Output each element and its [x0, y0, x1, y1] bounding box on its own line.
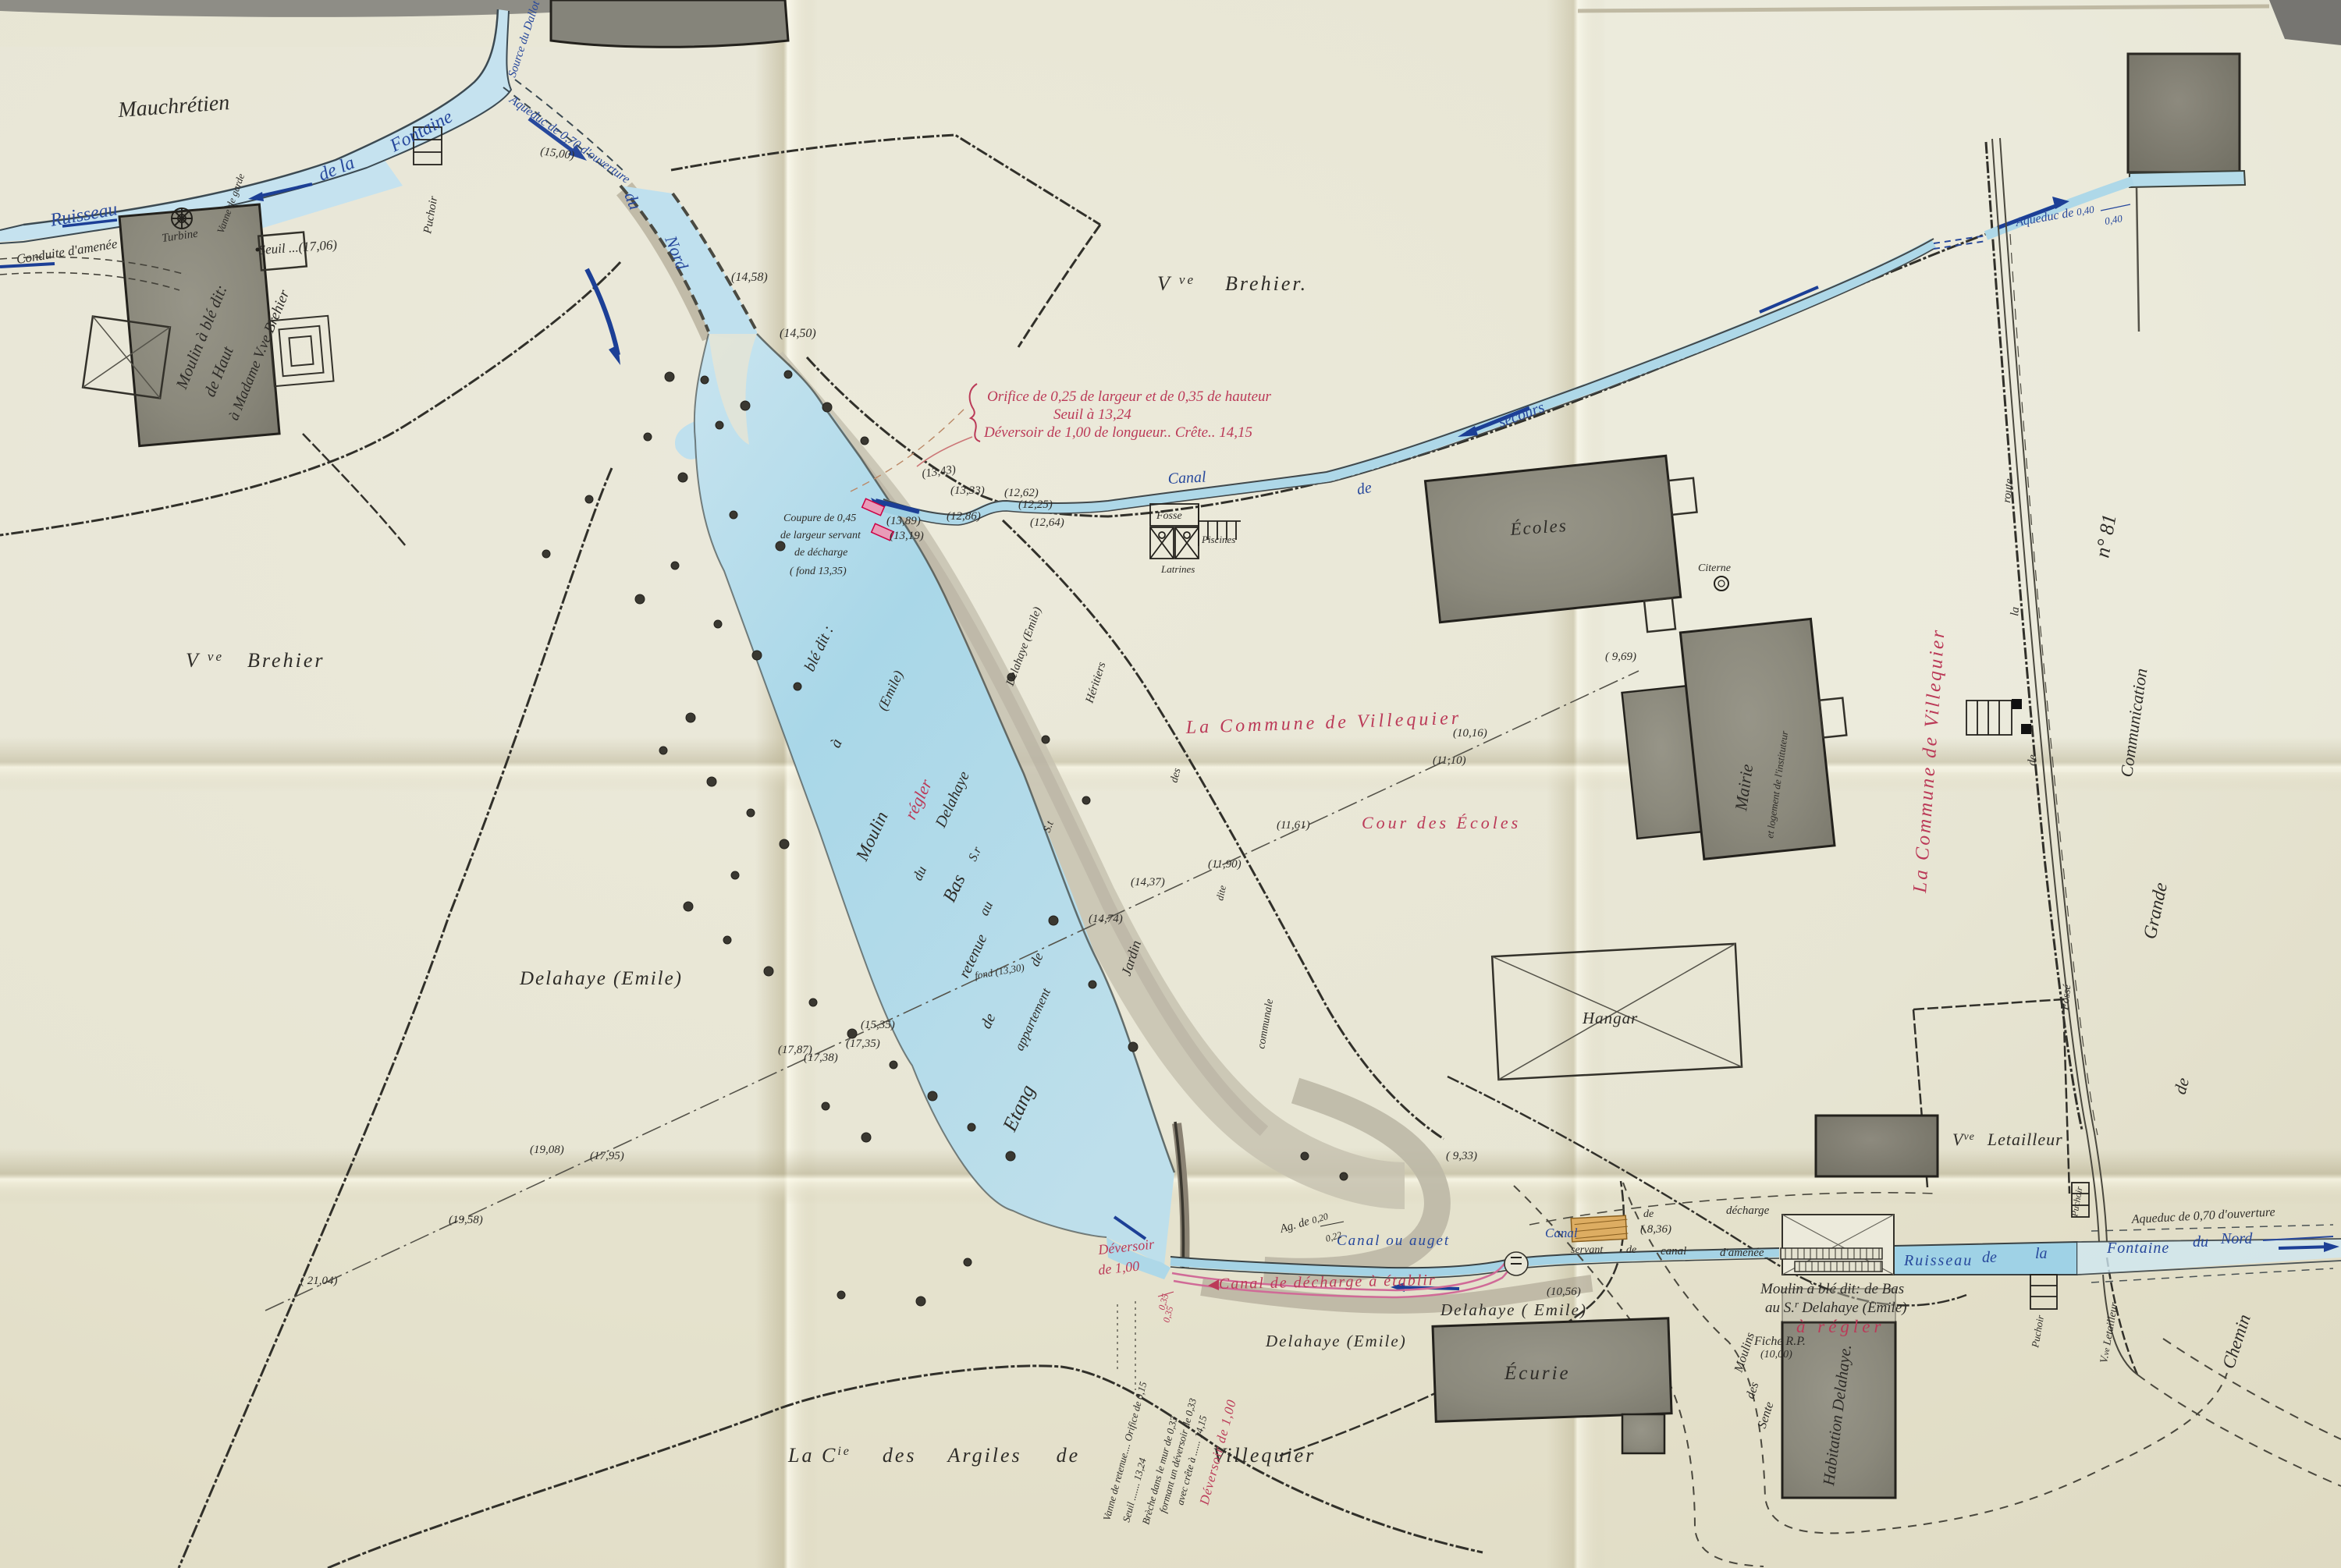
svg-text:Seuil à 13,24: Seuil à 13,24 [1053, 406, 1131, 423]
svg-text:(17,87): (17,87) [778, 1044, 812, 1056]
svg-text:Hangar: Hangar [1582, 1009, 1638, 1027]
svg-text:( 8,36): ( 8,36) [1640, 1223, 1671, 1236]
svg-text:( 21,04): ( 21,04) [300, 1275, 338, 1287]
svg-text:(14,74): (14,74) [1089, 913, 1123, 925]
svg-text:Canal: Canal [1545, 1226, 1578, 1240]
svg-text:Coupure de 0,45: Coupure de 0,45 [783, 513, 856, 524]
svg-text:( fond 13,35): ( fond 13,35) [790, 566, 847, 577]
svg-text:d'amenée: d'amenée [1720, 1247, 1764, 1259]
svg-text:canal: canal [1661, 1245, 1686, 1258]
svg-text:la: la [2035, 1245, 2048, 1262]
svg-text:à régler: à régler [1796, 1317, 1885, 1336]
svg-text:Nord: Nord [2220, 1230, 2253, 1247]
svg-text:Delahaye (Emile): Delahaye (Emile) [1265, 1332, 1407, 1350]
svg-text:(11,90): (11,90) [1208, 858, 1242, 871]
svg-text:Citerne: Citerne [1698, 562, 1731, 574]
svg-text:du: du [2193, 1233, 2208, 1250]
svg-text:Déversoir de 1,00 de longueur.: Déversoir de 1,00 de longueur.. Crête.. … [983, 424, 1252, 441]
svg-text:Ruisseau: Ruisseau [1903, 1252, 1973, 1269]
svg-text:Écurie: Écurie [1504, 1362, 1571, 1384]
svg-text:(17,95): (17,95) [590, 1150, 624, 1162]
svg-text:de: de [1643, 1208, 1654, 1220]
svg-text:de: de [1626, 1244, 1636, 1256]
svg-text:(12,86): (12,86) [947, 510, 981, 523]
svg-text:Cour des Écoles: Cour des Écoles [1362, 813, 1521, 832]
svg-text:de décharge: de décharge [794, 547, 847, 559]
svg-text:de largeur servant: de largeur servant [780, 530, 861, 541]
svg-text:(11,61): (11,61) [1277, 819, 1310, 832]
svg-text:(19,58): (19,58) [449, 1214, 483, 1226]
svg-text:(12,62): (12,62) [1004, 487, 1039, 499]
svg-text:servant: servant [1571, 1244, 1604, 1256]
svg-text:(14,37): (14,37) [1131, 876, 1165, 889]
svg-text:de: de [1355, 479, 1373, 498]
svg-text:Orifice de 0,25 de largeur et: Orifice de 0,25 de largeur et de 0,35 de… [987, 388, 1272, 405]
svg-text:(13,19): (13,19) [890, 530, 924, 542]
svg-text:(13,89): (13,89) [886, 515, 921, 527]
svg-text:Canal ou auget: Canal ou auget [1337, 1233, 1450, 1249]
svg-text:(10,56): (10,56) [1547, 1286, 1581, 1298]
svg-text:V veBrehier: V veBrehier [186, 649, 325, 672]
svg-text:Canal: Canal [1167, 468, 1206, 488]
svg-text:route: route [2001, 477, 2016, 503]
svg-text:(15,35): (15,35) [861, 1019, 895, 1031]
svg-text:( 9,33): ( 9,33) [1446, 1150, 1477, 1162]
svg-text:Fontaine: Fontaine [2106, 1240, 2169, 1257]
svg-text:( 9,69): ( 9,69) [1605, 651, 1636, 663]
svg-text:Fiche R.P.: Fiche R.P. [1753, 1335, 1806, 1348]
svg-text:(10,00): (10,00) [1760, 1349, 1792, 1360]
svg-text:Piscines: Piscines [1201, 534, 1235, 545]
svg-text:(13,33): (13,33) [950, 484, 985, 497]
svg-text:Delahaye (Emile): Delahaye (Emile) [519, 968, 683, 989]
svg-text:au S.rDelahaye (Emile): au S.rDelahaye (Emile) [1765, 1298, 1907, 1316]
svg-text:(14,50): (14,50) [780, 327, 816, 340]
svg-text:décharge: décharge [1726, 1204, 1770, 1217]
svg-text:de: de [1982, 1249, 1997, 1266]
svg-text:la: la [2009, 606, 2022, 616]
svg-text:(10,16): (10,16) [1453, 727, 1487, 740]
svg-text:(11,10): (11,10) [1433, 754, 1466, 767]
svg-text:(19,08): (19,08) [530, 1144, 564, 1156]
svg-text:Delahaye ( Emile): Delahaye ( Emile) [1440, 1300, 1587, 1319]
svg-text:Latrines: Latrines [1160, 563, 1195, 575]
svg-text:(17,35): (17,35) [846, 1038, 880, 1050]
svg-text:(12,25): (12,25) [1018, 498, 1053, 511]
svg-text:de: de [2026, 754, 2039, 766]
svg-text:(12,64): (12,64) [1030, 516, 1064, 529]
svg-text:(14,58): (14,58) [731, 271, 768, 284]
svg-text:Fosse: Fosse [1156, 510, 1182, 522]
svg-text:Moulin à blé dit: de Bas: Moulin à blé dit: de Bas [1760, 1281, 1904, 1297]
svg-text:Écoles: Écoles [1509, 516, 1568, 539]
